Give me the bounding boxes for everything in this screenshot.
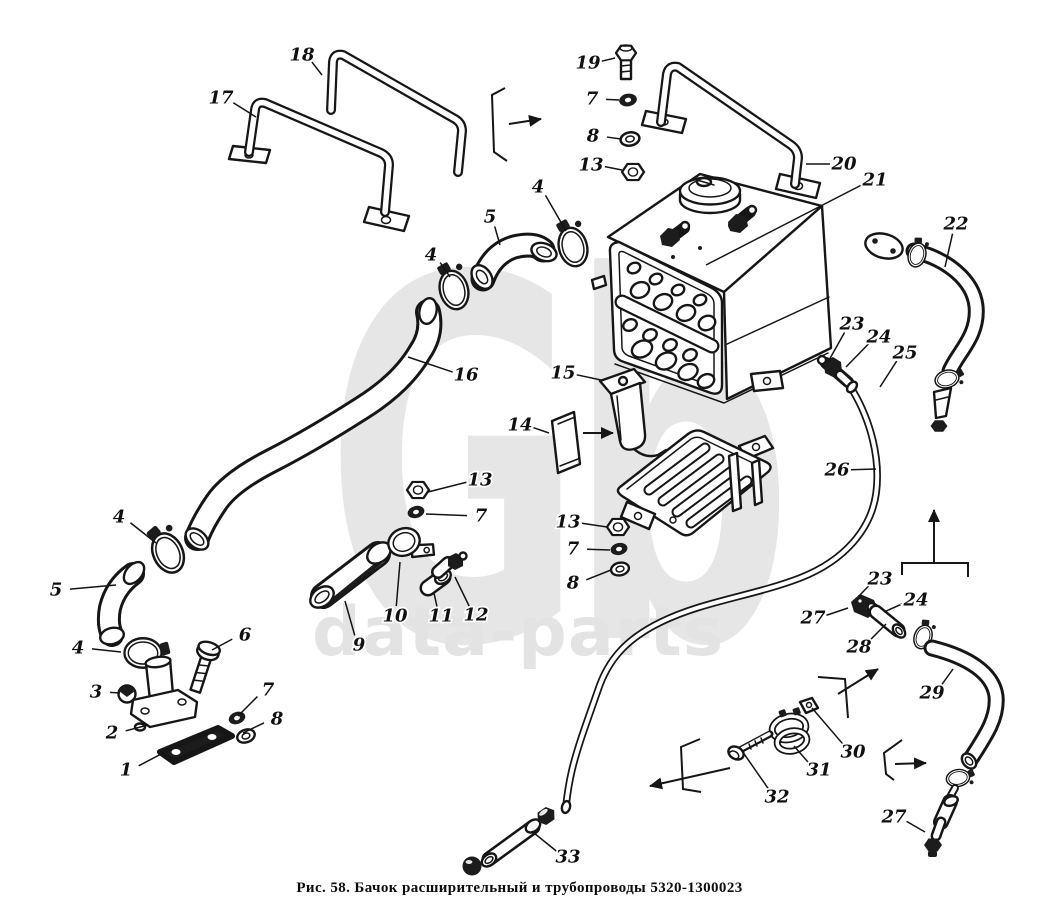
nut-13-drawing xyxy=(407,482,429,498)
part-number-24: 24 xyxy=(902,590,928,611)
gasket-1-drawing xyxy=(160,728,232,762)
nut-13-drawing xyxy=(622,164,644,180)
washer-8-drawing xyxy=(620,131,641,147)
leader-line-19 xyxy=(602,58,615,61)
part-number-17: 17 xyxy=(208,88,234,109)
part-number-27: 27 xyxy=(880,807,907,828)
part-number-23: 23 xyxy=(866,569,892,590)
part-number-4: 4 xyxy=(113,507,126,528)
part-number-4: 4 xyxy=(425,245,438,266)
part-number-8: 8 xyxy=(566,573,580,594)
leader-line-7 xyxy=(587,549,610,550)
part-number-29: 29 xyxy=(918,683,945,704)
part-number-10: 10 xyxy=(382,606,408,627)
leader-line-24 xyxy=(884,604,903,612)
leader-line-27 xyxy=(826,608,848,615)
watermark-text: data-parts xyxy=(312,593,724,672)
part-number-18: 18 xyxy=(289,45,315,66)
cone-fitting-27-bottom-drawing xyxy=(924,767,977,857)
part-number-5: 5 xyxy=(50,580,63,601)
leader-line-25 xyxy=(880,361,897,387)
leader-line-28 xyxy=(870,624,886,641)
part-number-5: 5 xyxy=(484,207,497,228)
part-number-31: 31 xyxy=(806,760,831,781)
part-number-20: 20 xyxy=(830,154,857,175)
diagram-artwork: Gb data-parts xyxy=(0,0,1039,910)
part-number-15: 15 xyxy=(550,363,575,384)
part-number-6: 6 xyxy=(239,625,252,646)
part-number-3: 3 xyxy=(90,682,103,703)
part-number-13: 13 xyxy=(578,155,603,176)
tube-33-drawing xyxy=(463,804,559,875)
part-number-4: 4 xyxy=(532,177,545,198)
bolt-19-drawing xyxy=(616,45,636,79)
plug-3-drawing xyxy=(119,685,136,702)
strap-17-drawing xyxy=(229,103,409,231)
leader-line-4 xyxy=(92,649,121,652)
part-number-8: 8 xyxy=(586,126,600,147)
part-number-13: 13 xyxy=(555,512,580,533)
leader-line-30 xyxy=(812,708,843,745)
part-number-30: 30 xyxy=(840,742,866,763)
part-number-2: 2 xyxy=(105,723,119,744)
figure-caption: Рис. 58. Бачок расширительный и трубопро… xyxy=(0,880,1039,897)
strap-18-drawing xyxy=(331,55,462,172)
leader-line-27 xyxy=(907,821,925,832)
leader-line-7 xyxy=(238,697,257,716)
part-number-12: 12 xyxy=(463,605,488,626)
leader-line-33 xyxy=(534,833,557,851)
nut-7-drawing xyxy=(618,92,638,108)
parts-diagram-page: Gb data-parts xyxy=(0,0,1039,910)
part-number-7: 7 xyxy=(586,89,599,110)
part-number-9: 9 xyxy=(353,635,366,656)
leader-line-13 xyxy=(605,167,622,170)
part-number-22: 22 xyxy=(942,214,968,235)
leader-line-1 xyxy=(139,753,163,766)
part-number-33: 33 xyxy=(555,847,580,868)
part-number-26: 26 xyxy=(823,460,850,481)
part-number-32: 32 xyxy=(764,787,789,808)
fitting-27-28-drawing xyxy=(851,594,908,640)
part-number-25: 25 xyxy=(891,343,917,364)
part-number-19: 19 xyxy=(575,53,601,74)
part-number-1: 1 xyxy=(120,760,133,781)
part-number-28: 28 xyxy=(845,637,872,658)
nut-13-drawing xyxy=(607,519,629,535)
part-number-13: 13 xyxy=(467,470,492,491)
part-number-23: 23 xyxy=(838,314,864,335)
leader-line-24 xyxy=(846,344,869,367)
part-number-7: 7 xyxy=(475,506,488,527)
part-number-14: 14 xyxy=(507,415,532,436)
clamp-4-drawing xyxy=(142,519,190,578)
part-number-27: 27 xyxy=(799,608,826,629)
leader-line-26 xyxy=(851,469,876,470)
part-number-7: 7 xyxy=(567,539,580,560)
part-number-21: 21 xyxy=(861,170,887,191)
leader-line-7 xyxy=(606,99,619,100)
washer-7-drawing xyxy=(227,709,247,726)
part-number-7: 7 xyxy=(262,680,275,701)
fitting-23-24-drawing xyxy=(818,356,859,394)
part-number-24: 24 xyxy=(865,327,891,348)
leader-line-3 xyxy=(110,692,120,693)
part-number-16: 16 xyxy=(453,365,479,386)
part-number-8: 8 xyxy=(270,709,284,730)
part-number-11: 11 xyxy=(428,606,453,627)
washer-8-drawing xyxy=(235,727,256,745)
pad-14-drawing xyxy=(552,412,580,473)
part-number-4: 4 xyxy=(72,638,85,659)
leader-line-8 xyxy=(607,137,621,139)
elbow-5-left-drawing xyxy=(98,558,148,647)
